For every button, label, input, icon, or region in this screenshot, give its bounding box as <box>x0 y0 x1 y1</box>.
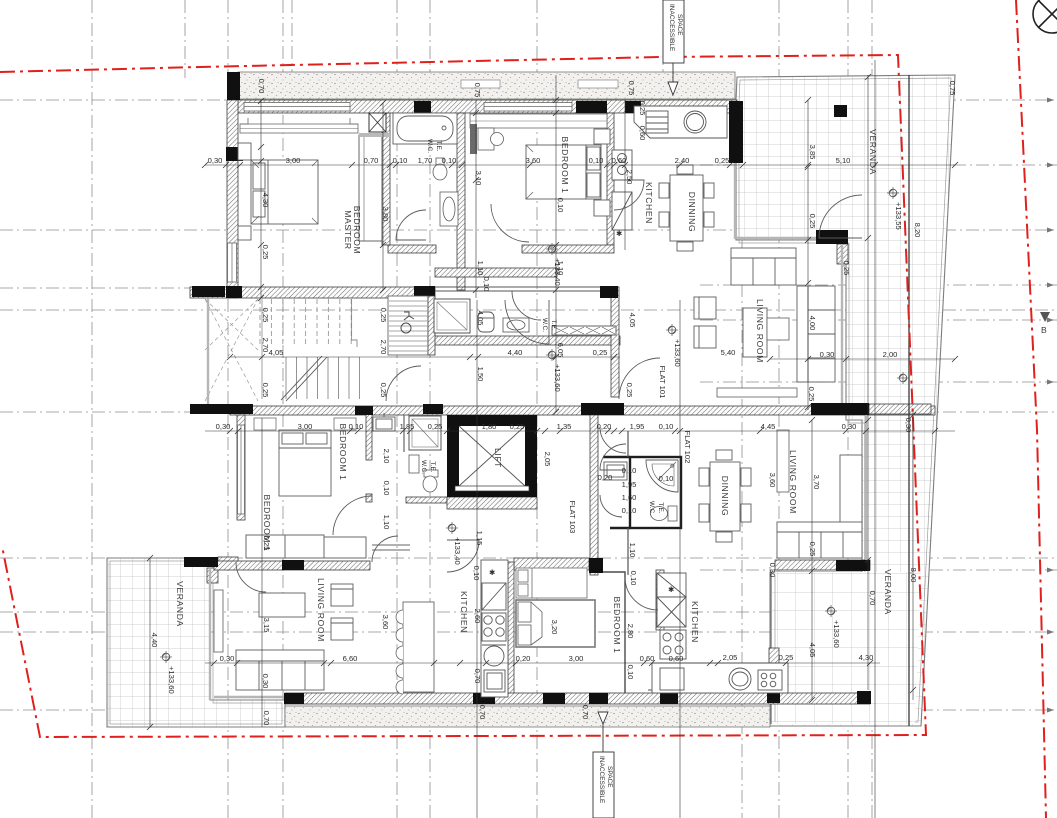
svg-text:0,30: 0,30 <box>820 350 835 359</box>
svg-text:0,25: 0,25 <box>638 101 647 116</box>
svg-text:0,25: 0,25 <box>808 214 817 229</box>
svg-text:✱: ✱ <box>668 585 675 594</box>
svg-text:3,15: 3,15 <box>262 618 271 633</box>
svg-text:5,40: 5,40 <box>721 348 736 357</box>
svg-text:1,10: 1,10 <box>382 515 391 530</box>
svg-text:3,60: 3,60 <box>526 156 541 165</box>
svg-text:+133,60: +133,60 <box>832 620 841 648</box>
svg-text:+133,60: +133,60 <box>673 339 682 367</box>
svg-text:0,10: 0,10 <box>482 277 491 292</box>
svg-text:0,10: 0,10 <box>393 156 408 165</box>
svg-text:+133,60: +133,60 <box>553 364 562 392</box>
svg-text:SPACE: SPACE <box>676 14 683 36</box>
svg-text:0,25: 0,25 <box>379 308 388 323</box>
svg-text:2,80: 2,80 <box>626 624 635 639</box>
svg-text:BEDROOM 1: BEDROOM 1 <box>338 424 348 481</box>
svg-text:2,70: 2,70 <box>379 340 388 355</box>
svg-text:2,40: 2,40 <box>675 156 690 165</box>
svg-text:0,70: 0,70 <box>257 79 266 94</box>
svg-text:3,85: 3,85 <box>808 145 817 160</box>
svg-text:LIVING ROOM: LIVING ROOM <box>755 299 765 363</box>
svg-text:3,00: 3,00 <box>569 654 584 663</box>
svg-text:0,70: 0,70 <box>473 669 482 684</box>
svg-text:BEDROOM 1: BEDROOM 1 <box>612 597 622 654</box>
svg-text:0,25: 0,25 <box>807 387 816 402</box>
svg-text:✱: ✱ <box>489 568 496 577</box>
svg-text:+133,60: +133,60 <box>167 666 176 694</box>
svg-text:0,25: 0,25 <box>808 542 817 557</box>
svg-text:MASTERBEDROOM: MASTERBEDROOM <box>343 206 362 255</box>
svg-text:1,50: 1,50 <box>476 367 485 382</box>
svg-text:DINNING: DINNING <box>720 476 730 516</box>
svg-text:1,60: 1,60 <box>622 493 637 502</box>
svg-text:0,10: 0,10 <box>442 156 457 165</box>
svg-text:DINNING: DINNING <box>687 192 697 232</box>
svg-text:INACCESSIBLE: INACCESSIBLE <box>598 756 605 804</box>
svg-text:3,00: 3,00 <box>298 422 313 431</box>
svg-text:3,20: 3,20 <box>550 620 559 635</box>
svg-text:5,10: 5,10 <box>836 156 851 165</box>
svg-text:✱: ✱ <box>616 229 623 238</box>
svg-text:4,00: 4,00 <box>808 316 817 331</box>
svg-text:0,25: 0,25 <box>510 422 525 431</box>
svg-text:LIVING ROOM: LIVING ROOM <box>316 578 326 642</box>
svg-text:FLAT 103: FLAT 103 <box>568 501 577 534</box>
svg-text:0,25: 0,25 <box>779 653 794 662</box>
svg-text:0,10: 0,10 <box>659 474 674 483</box>
svg-text:4,40: 4,40 <box>508 348 523 357</box>
svg-text:0,70: 0,70 <box>262 711 271 726</box>
svg-text:+133,55: +133,55 <box>894 202 903 230</box>
svg-text:B: B <box>1041 325 1047 335</box>
svg-text:0,10: 0,10 <box>622 506 637 515</box>
svg-text:4,05: 4,05 <box>808 643 817 658</box>
svg-text:3,70: 3,70 <box>812 475 821 490</box>
svg-text:0,25: 0,25 <box>379 383 388 398</box>
svg-text:0,10: 0,10 <box>472 566 481 581</box>
svg-text:0,70: 0,70 <box>581 705 590 720</box>
svg-text:4,05: 4,05 <box>476 311 485 326</box>
svg-text:+133,40: +133,40 <box>453 537 462 565</box>
svg-text:0,75: 0,75 <box>948 81 957 96</box>
svg-text:4,45: 4,45 <box>761 422 776 431</box>
svg-text:SPACE: SPACE <box>606 766 613 788</box>
svg-text:4,30: 4,30 <box>859 653 874 662</box>
svg-text:LIVING ROOM: LIVING ROOM <box>788 450 798 514</box>
svg-text:1,15: 1,15 <box>475 531 484 546</box>
svg-text:1,10: 1,10 <box>556 261 565 276</box>
svg-text:0,30: 0,30 <box>904 418 913 433</box>
svg-text:0,25: 0,25 <box>262 536 271 551</box>
svg-text:2,05: 2,05 <box>723 653 738 662</box>
svg-text:FLAT 102: FLAT 102 <box>683 431 692 464</box>
svg-text:0,30: 0,30 <box>842 422 857 431</box>
svg-text:0,10: 0,10 <box>589 156 604 165</box>
svg-text:0,25: 0,25 <box>261 383 270 398</box>
svg-text:0,25: 0,25 <box>842 261 851 276</box>
svg-text:2,05: 2,05 <box>543 452 552 467</box>
svg-text:2,50: 2,50 <box>625 170 634 185</box>
svg-text:3,00: 3,00 <box>286 156 301 165</box>
svg-text:0,30: 0,30 <box>261 674 270 689</box>
svg-text:2,60: 2,60 <box>473 609 482 624</box>
svg-text:2,70: 2,70 <box>261 338 270 353</box>
svg-text:0,75: 0,75 <box>627 81 636 96</box>
svg-text:1,80: 1,80 <box>482 422 497 431</box>
svg-text:0,20: 0,20 <box>597 422 612 431</box>
svg-text:INACCESSIBLE: INACCESSIBLE <box>668 4 675 52</box>
svg-text:0,10: 0,10 <box>622 466 637 475</box>
svg-text:0,30: 0,30 <box>768 563 777 578</box>
svg-text:0,25: 0,25 <box>261 245 270 260</box>
svg-text:0,60: 0,60 <box>640 654 655 663</box>
svg-text:1,70: 1,70 <box>418 156 433 165</box>
svg-text:0,60: 0,60 <box>669 654 684 663</box>
svg-text:0,25: 0,25 <box>428 422 443 431</box>
svg-text:1,35: 1,35 <box>557 422 572 431</box>
svg-text:2,10: 2,10 <box>382 449 391 464</box>
svg-text:VERANDA: VERANDA <box>175 581 185 627</box>
svg-text:FLAT 101: FLAT 101 <box>658 366 667 399</box>
svg-text:0,25: 0,25 <box>261 308 270 323</box>
svg-text:0,10: 0,10 <box>659 422 674 431</box>
svg-text:8,20: 8,20 <box>913 223 922 238</box>
svg-text:1,95: 1,95 <box>622 480 637 489</box>
svg-text:KITCHEN: KITCHEN <box>690 601 700 643</box>
svg-text:4,40: 4,40 <box>150 633 159 648</box>
svg-text:0,60: 0,60 <box>638 126 647 141</box>
svg-text:1,95: 1,95 <box>630 422 645 431</box>
svg-text:1,10: 1,10 <box>476 261 485 276</box>
svg-text:3,60: 3,60 <box>381 615 390 630</box>
svg-text:LIFT: LIFT <box>493 448 503 468</box>
svg-text:3,10: 3,10 <box>474 171 483 186</box>
svg-text:1,85: 1,85 <box>400 422 415 431</box>
svg-text:0,20: 0,20 <box>598 473 613 482</box>
svg-text:6,60: 6,60 <box>343 654 358 663</box>
svg-text:0,10: 0,10 <box>556 198 565 213</box>
svg-text:3,80: 3,80 <box>381 207 390 222</box>
svg-text:KITCHEN: KITCHEN <box>459 591 469 633</box>
svg-text:0,30: 0,30 <box>216 422 231 431</box>
svg-text:4,30: 4,30 <box>261 193 270 208</box>
svg-text:0,75: 0,75 <box>473 83 482 98</box>
svg-text:6,05: 6,05 <box>556 343 565 358</box>
svg-text:0,10: 0,10 <box>626 665 635 680</box>
svg-text:VERANDA: VERANDA <box>883 569 893 615</box>
svg-text:0,10: 0,10 <box>629 571 638 586</box>
svg-text:3,60: 3,60 <box>768 473 777 488</box>
svg-text:VERANDA: VERANDA <box>868 129 878 175</box>
svg-text:0,70: 0,70 <box>868 591 877 606</box>
svg-text:0,70: 0,70 <box>364 156 379 165</box>
svg-text:0,20: 0,20 <box>516 654 531 663</box>
svg-text:8,00: 8,00 <box>909 568 918 583</box>
svg-text:0,10: 0,10 <box>349 422 364 431</box>
svg-text:0,30: 0,30 <box>220 654 235 663</box>
svg-text:0,25: 0,25 <box>715 156 730 165</box>
svg-text:0,60: 0,60 <box>612 156 627 165</box>
svg-text:0,25: 0,25 <box>593 348 608 357</box>
svg-text:2,00: 2,00 <box>883 350 898 359</box>
svg-text:0,30: 0,30 <box>208 156 223 165</box>
svg-text:1,10: 1,10 <box>628 543 637 558</box>
svg-text:KITCHEN: KITCHEN <box>644 182 654 224</box>
svg-text:0,10: 0,10 <box>382 481 391 496</box>
svg-text:4,05: 4,05 <box>628 313 637 328</box>
svg-text:0,25: 0,25 <box>625 383 634 398</box>
svg-text:0,70: 0,70 <box>478 705 487 720</box>
